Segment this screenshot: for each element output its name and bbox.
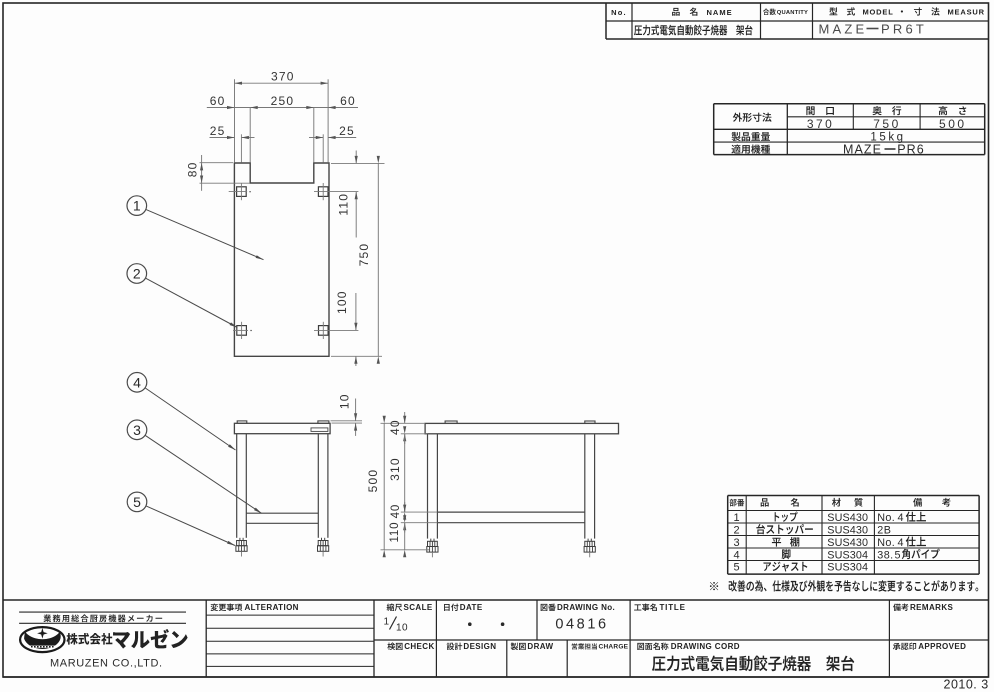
svg-text:40: 40 (388, 419, 402, 435)
svg-text:REMARKS: REMARKS (910, 603, 954, 612)
svg-text:10: 10 (396, 623, 408, 634)
svg-text:110: 110 (336, 193, 350, 216)
svg-text:1: 1 (133, 198, 141, 214)
svg-text:SCALE: SCALE (404, 603, 433, 612)
svg-text:500: 500 (366, 469, 380, 493)
svg-text:QUANTITY: QUANTITY (777, 10, 808, 16)
svg-text:60: 60 (210, 94, 226, 108)
svg-text:MAZE: MAZE (843, 142, 882, 156)
svg-text:250: 250 (271, 94, 295, 108)
svg-text:5: 5 (734, 562, 740, 574)
svg-text:No.: No. (611, 8, 627, 17)
svg-text:10: 10 (337, 393, 351, 409)
svg-text:60: 60 (340, 94, 356, 108)
svg-text:5: 5 (133, 494, 141, 510)
svg-text:DRAW: DRAW (527, 642, 553, 651)
svg-text:CHARGE: CHARGE (599, 644, 629, 651)
svg-text:2: 2 (133, 266, 141, 282)
svg-text:PR6: PR6 (897, 142, 925, 156)
svg-text:NAME: NAME (707, 8, 733, 17)
svg-text:ALTERATION: ALTERATION (245, 603, 299, 612)
svg-text:110: 110 (389, 522, 401, 543)
svg-text:MAZE: MAZE (819, 21, 868, 36)
svg-text:DRAWING CORD: DRAWING CORD (671, 642, 740, 651)
svg-text:38.: 38. (877, 549, 893, 561)
svg-text:No.: No. (877, 512, 895, 524)
svg-text:25: 25 (210, 124, 226, 138)
svg-text:MEASUR: MEASUR (948, 8, 985, 17)
svg-text:370: 370 (271, 70, 295, 84)
svg-text:100: 100 (335, 290, 349, 314)
svg-text:04816: 04816 (555, 616, 608, 632)
svg-text:2: 2 (734, 525, 740, 537)
svg-text:25: 25 (339, 124, 355, 138)
svg-text:5: 5 (895, 549, 901, 561)
svg-text:2B: 2B (877, 525, 891, 537)
svg-text:SUS304: SUS304 (827, 549, 868, 561)
svg-text:1: 1 (384, 617, 390, 628)
svg-text:310: 310 (388, 457, 402, 481)
svg-text:DESIGN: DESIGN (463, 642, 496, 651)
svg-text:TITLE: TITLE (660, 603, 686, 612)
svg-text:4: 4 (898, 537, 904, 549)
svg-text:750: 750 (873, 117, 901, 131)
svg-text:4: 4 (898, 512, 904, 524)
svg-text:2010. 3: 2010. 3 (944, 678, 989, 692)
svg-text:80: 80 (186, 162, 200, 178)
svg-text:CHECK: CHECK (404, 642, 434, 651)
svg-text:1: 1 (734, 512, 740, 524)
svg-text:SUS430: SUS430 (827, 512, 868, 524)
svg-text:SUS304: SUS304 (827, 562, 868, 574)
svg-text:APPROVED: APPROVED (918, 642, 966, 651)
svg-text:370: 370 (807, 117, 835, 131)
svg-text:500: 500 (939, 117, 967, 131)
svg-text:40: 40 (390, 504, 402, 518)
svg-text:4: 4 (734, 549, 740, 561)
svg-text:MODEL: MODEL (863, 8, 894, 17)
svg-text:No.: No. (877, 537, 895, 549)
svg-text:DRAWING No.: DRAWING No. (557, 603, 615, 612)
svg-text:750: 750 (357, 243, 371, 267)
svg-text:PR6T: PR6T (881, 21, 927, 36)
svg-text:SUS430: SUS430 (827, 537, 868, 549)
svg-text:4: 4 (133, 374, 141, 390)
svg-text:MARUZEN CO.,LTD.: MARUZEN CO.,LTD. (50, 658, 163, 670)
svg-text:DATE: DATE (460, 603, 483, 612)
svg-text:3: 3 (133, 422, 141, 438)
svg-text:3: 3 (734, 537, 740, 549)
svg-text:SUS430: SUS430 (827, 525, 868, 537)
